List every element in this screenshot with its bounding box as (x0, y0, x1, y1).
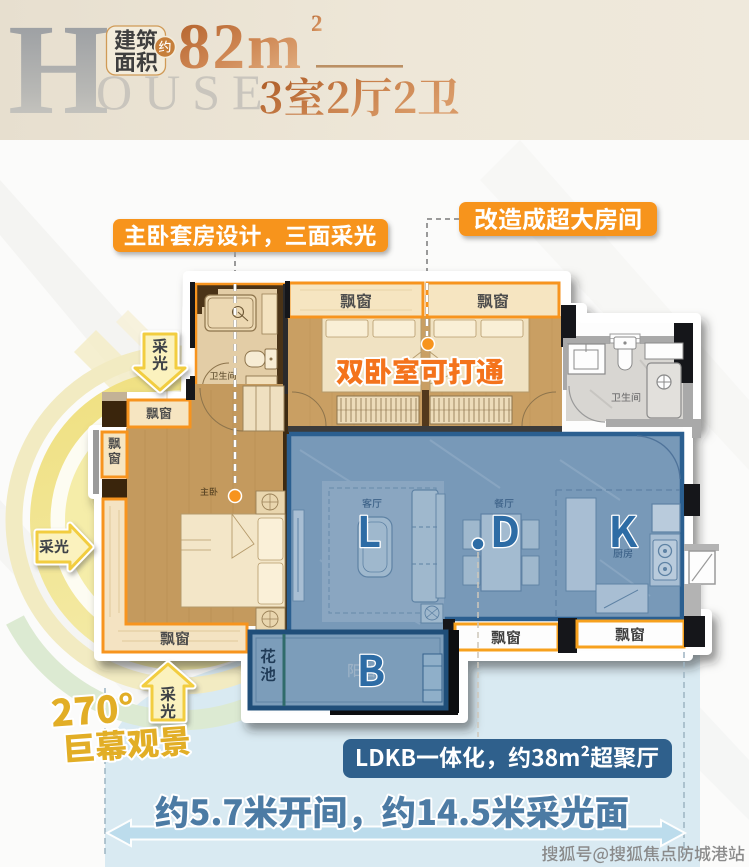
svg-text:H: H (8, 0, 109, 142)
svg-text:2: 2 (311, 11, 323, 36)
svg-text:82m: 82m (178, 11, 303, 83)
